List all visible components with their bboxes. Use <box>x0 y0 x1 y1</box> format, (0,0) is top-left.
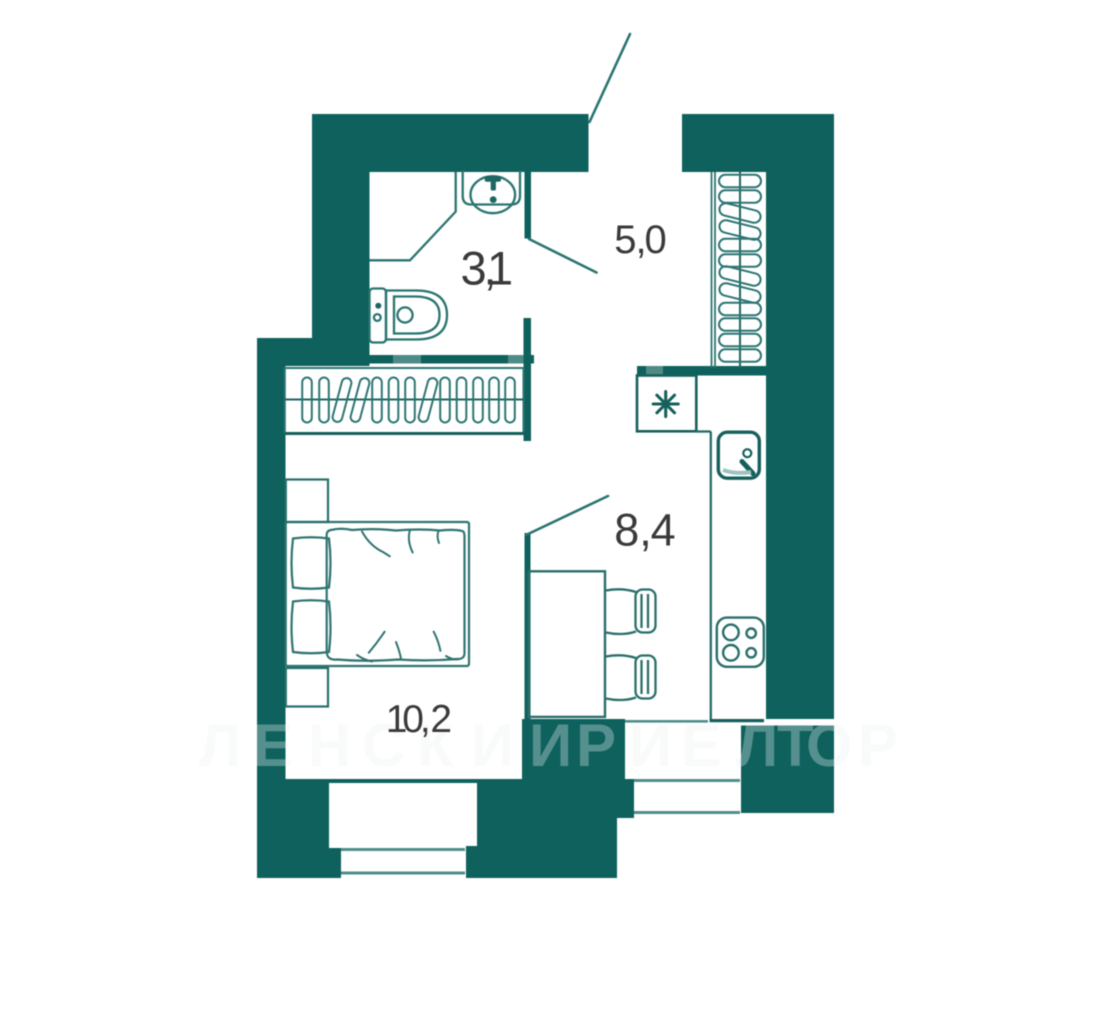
svg-text:Л: Л <box>736 712 778 779</box>
svg-text:И: И <box>629 712 672 779</box>
svg-text:И: И <box>529 712 572 779</box>
svg-text:Н: Н <box>308 712 351 779</box>
svg-text:Л: Л <box>199 712 241 779</box>
svg-text:Р: Р <box>576 712 616 779</box>
svg-text:Р: Р <box>858 712 898 779</box>
svg-text:10,2: 10,2 <box>386 698 452 741</box>
svg-text:И: И <box>471 712 514 779</box>
svg-text:О: О <box>806 712 853 779</box>
svg-text:Е: Е <box>681 712 721 779</box>
svg-text:8,4: 8,4 <box>614 505 675 556</box>
svg-text:Е: Е <box>253 712 293 779</box>
svg-text:3,1: 3,1 <box>461 242 514 295</box>
svg-text:5,0: 5,0 <box>614 218 667 262</box>
